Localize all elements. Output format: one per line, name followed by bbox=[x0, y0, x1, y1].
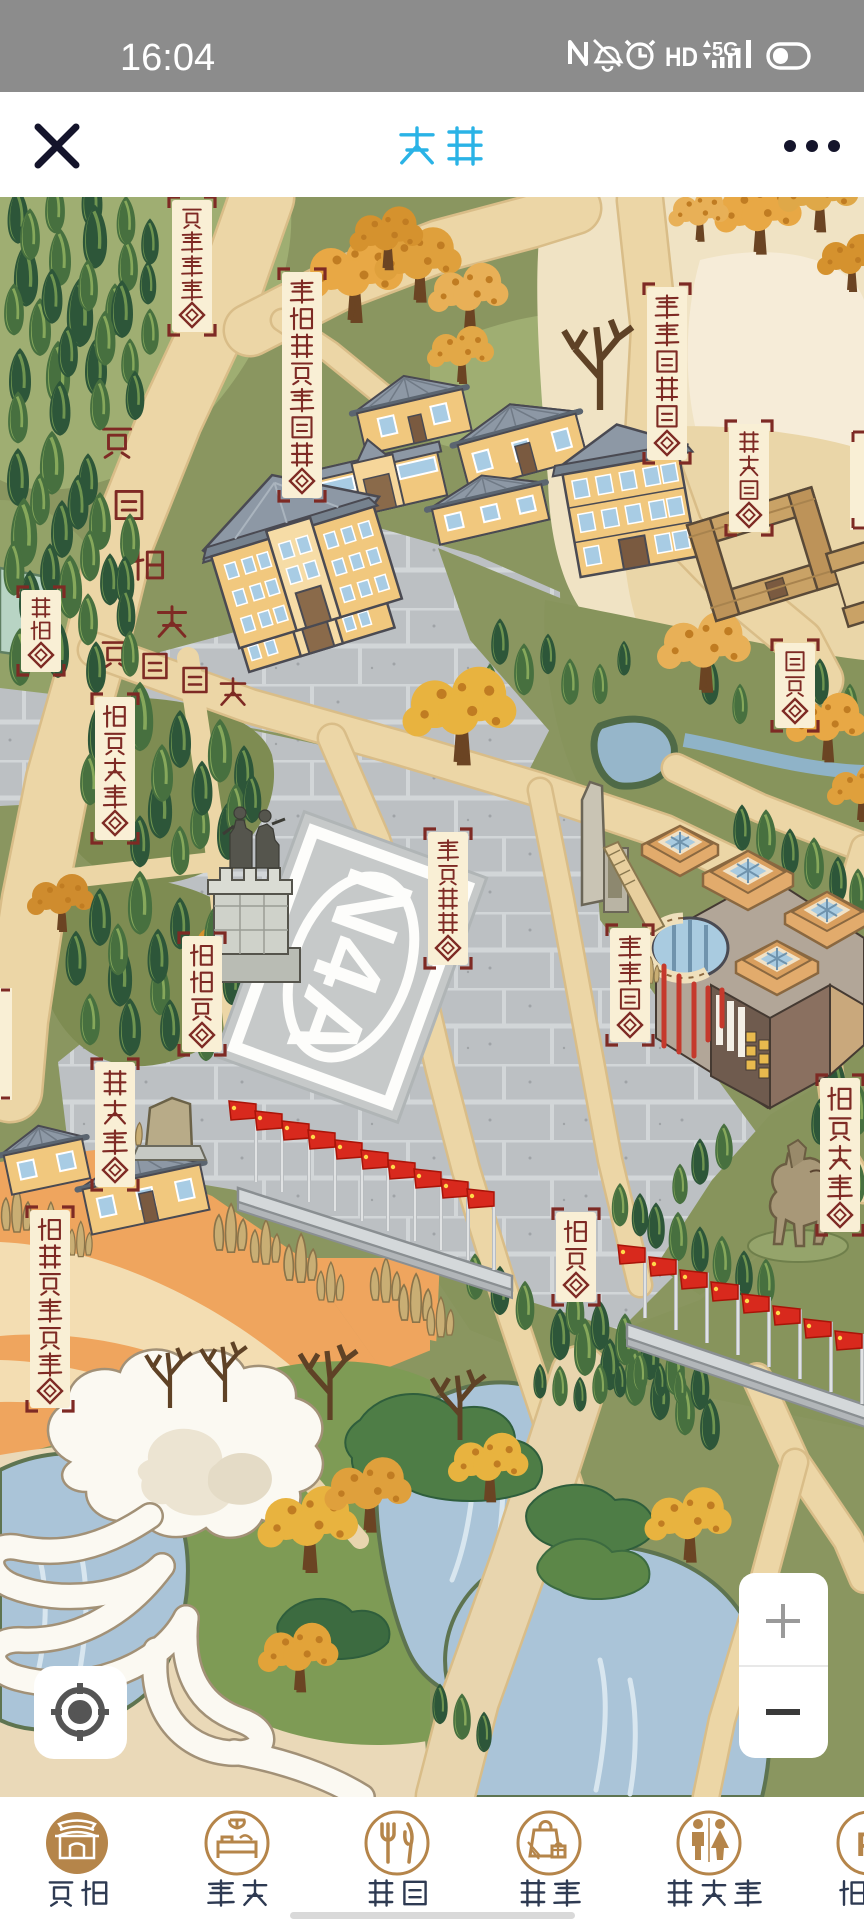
svg-text:16:04: 16:04 bbox=[120, 37, 215, 79]
svg-text:5G: 5G bbox=[712, 39, 739, 61]
svg-text:HD: HD bbox=[665, 42, 698, 72]
svg-text:P: P bbox=[856, 1826, 864, 1864]
